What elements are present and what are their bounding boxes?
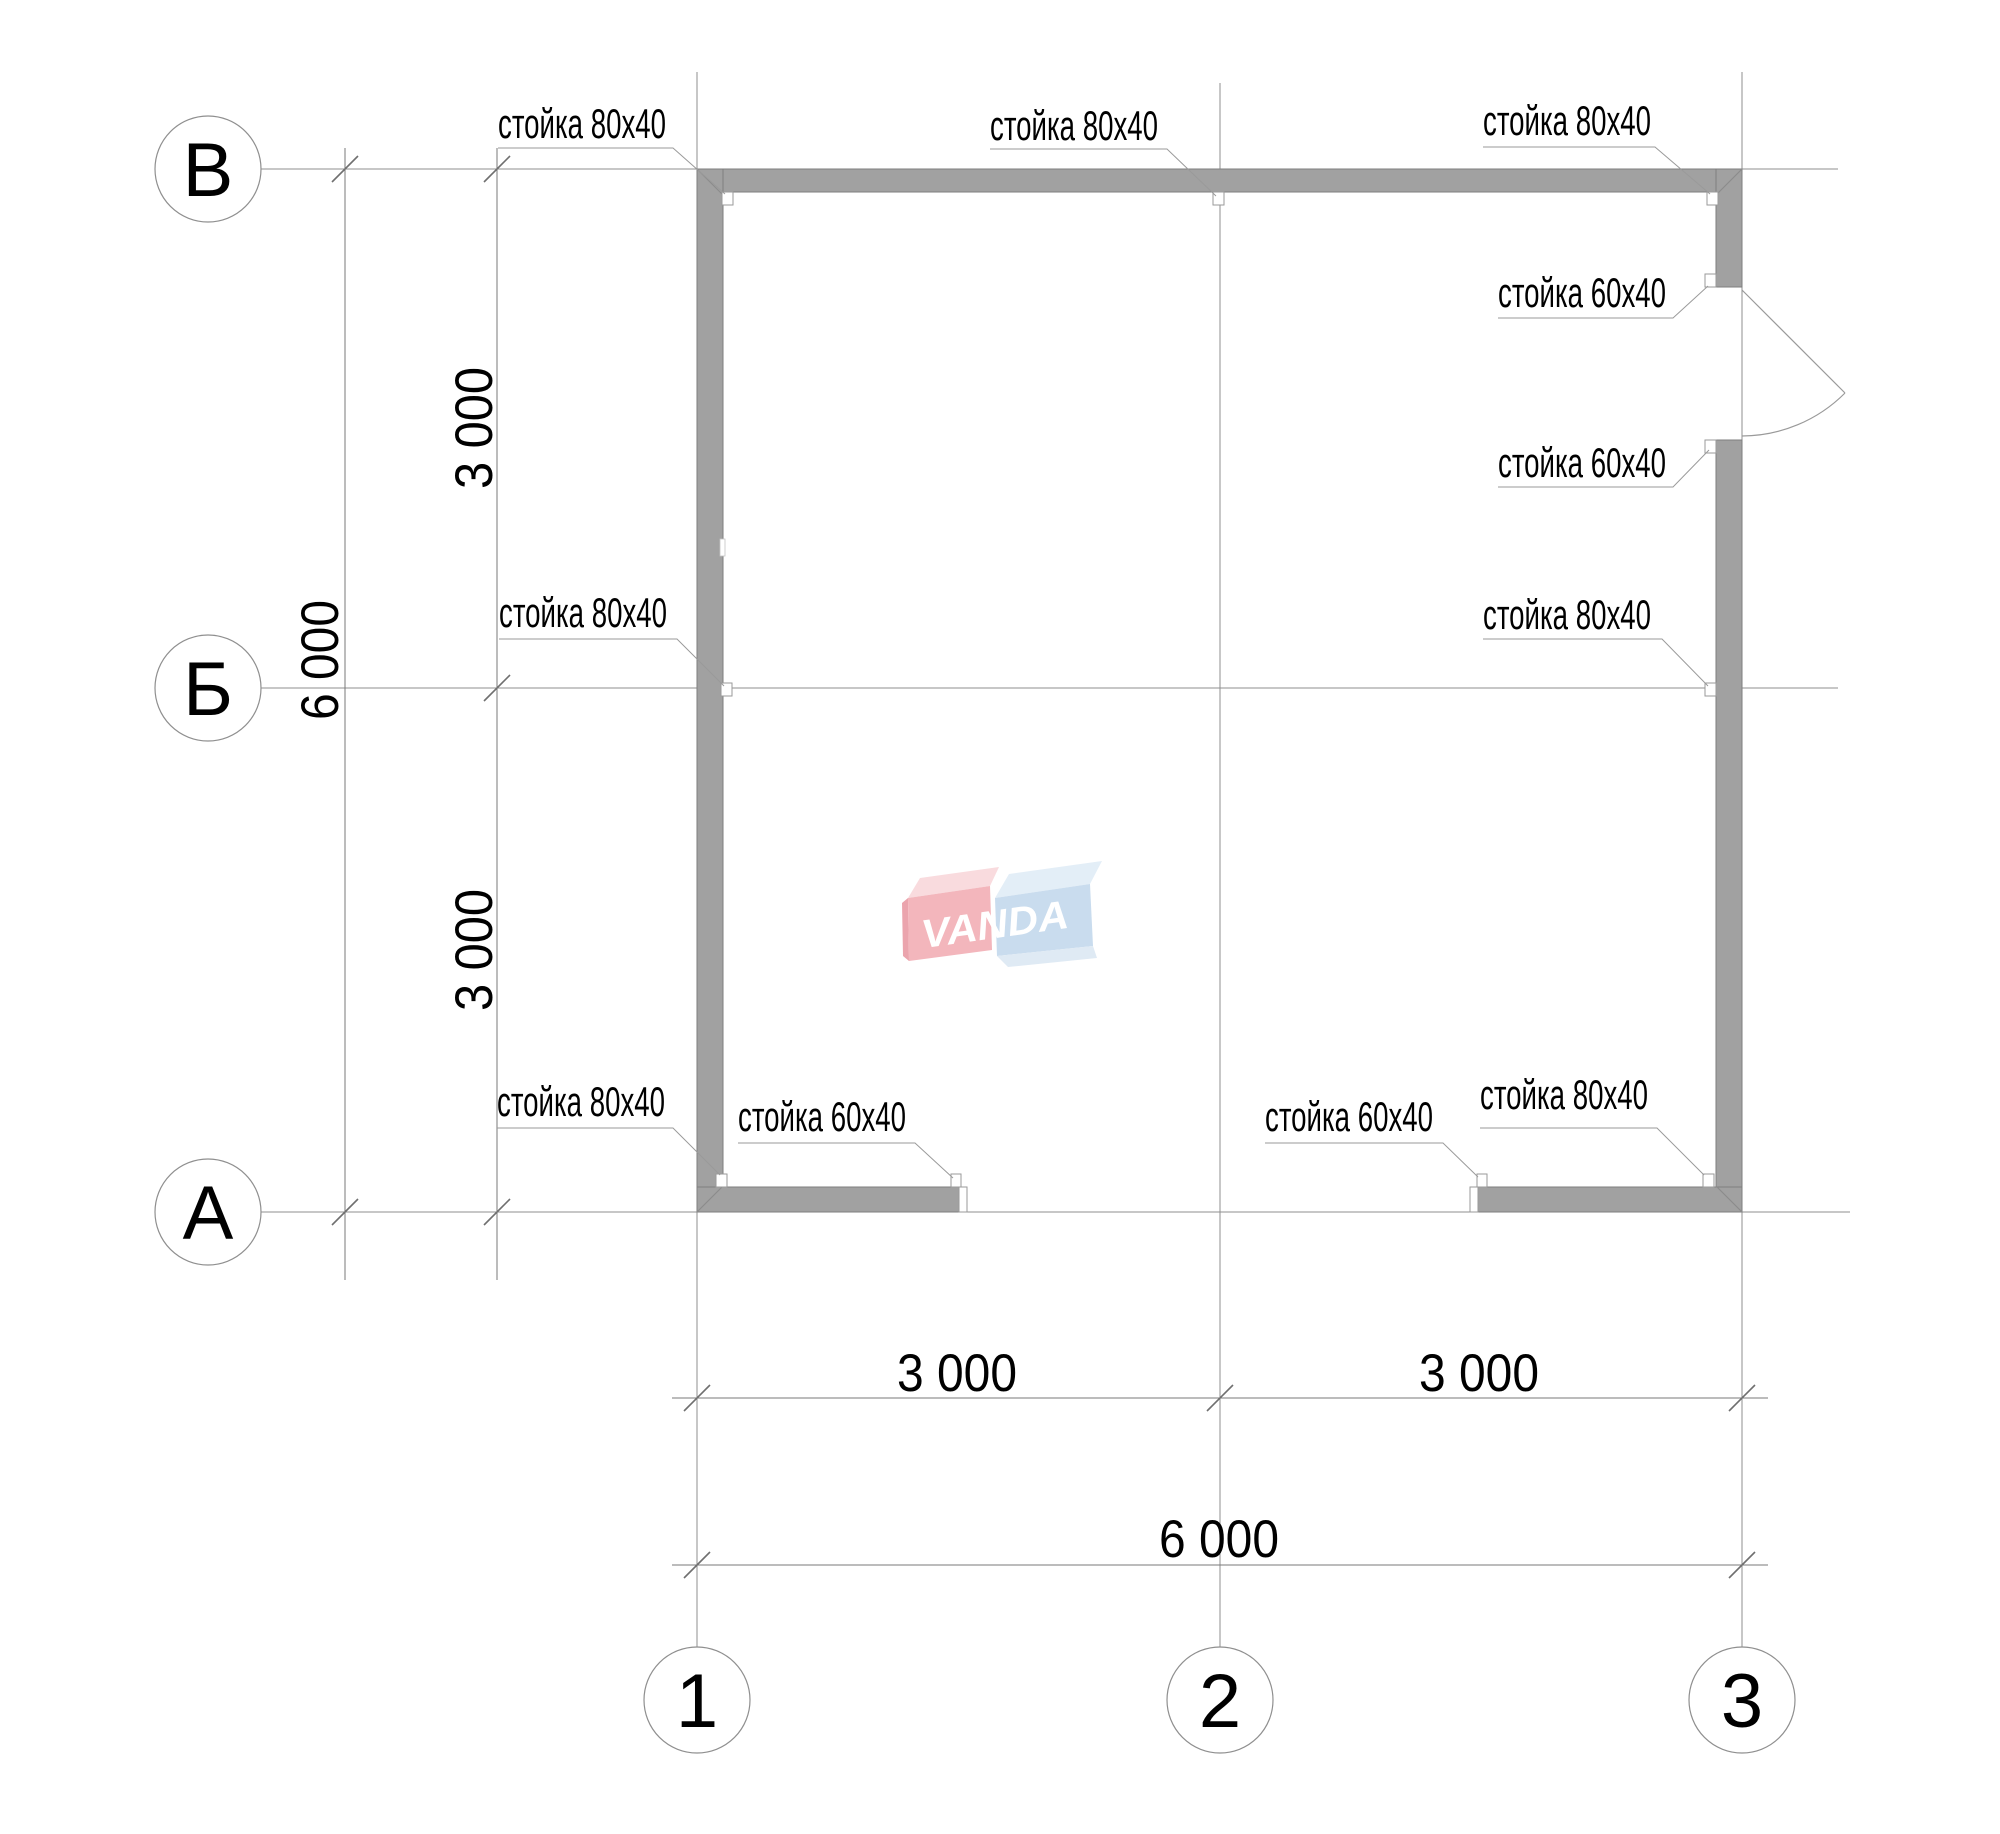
axis-bubble-row-a-label: А bbox=[183, 1171, 234, 1256]
door-swing bbox=[1742, 290, 1845, 436]
wall-right-lower bbox=[1716, 440, 1742, 1212]
post-bottom-right-corner bbox=[1703, 1174, 1714, 1187]
floor-plan-sheet: стойка 80х40 стойка 80х40 стойка 80х40 с… bbox=[0, 0, 2000, 1834]
wall-left bbox=[697, 169, 723, 1212]
axis-bubble-col-1-label: 1 bbox=[676, 1659, 718, 1744]
stud-callouts: стойка 80х40 стойка 80х40 стойка 80х40 с… bbox=[497, 97, 1710, 1178]
floor-plan-drawing: стойка 80х40 стойка 80х40 стойка 80х40 с… bbox=[0, 0, 2000, 1834]
stud-leader-bottom-opening-right bbox=[1265, 1143, 1478, 1177]
stud-label-right-middle: стойка 80х40 bbox=[1483, 591, 1651, 638]
axis-bubbles-columns: 1 2 3 bbox=[644, 1647, 1795, 1753]
stud-leader-bottom-left bbox=[497, 1128, 720, 1175]
stud-label-left-middle: стойка 80х40 bbox=[499, 589, 667, 636]
door-swing-arc bbox=[1742, 393, 1845, 436]
dim-left-top-segment: 3 000 bbox=[445, 367, 504, 489]
stud-leader-top-left bbox=[498, 148, 725, 194]
stud-leader-right-middle bbox=[1483, 639, 1708, 686]
post-door-bottom-jamb bbox=[1705, 440, 1716, 453]
stud-posts bbox=[716, 192, 1718, 1187]
post-left-wall-notch bbox=[720, 539, 725, 556]
logo-red-side-face bbox=[902, 898, 909, 961]
post-bottom-opening-left bbox=[951, 1174, 961, 1187]
dimension-lines bbox=[345, 148, 1768, 1565]
dim-bottom-total: 6 000 bbox=[1159, 1510, 1279, 1569]
door-leaf-line bbox=[1742, 290, 1845, 393]
axis-bubbles-rows: В Б А bbox=[155, 116, 261, 1265]
stud-label-top-middle: стойка 80х40 bbox=[990, 102, 1158, 149]
wall-end-cap-left-opening bbox=[959, 1187, 967, 1212]
dimension-ticks bbox=[332, 156, 1755, 1578]
post-bottom-left-corner bbox=[716, 1174, 727, 1187]
stud-label-bottom-left: стойка 80х40 bbox=[497, 1078, 665, 1125]
axis-bubble-col-2-label: 2 bbox=[1199, 1659, 1241, 1744]
dim-bottom-right-segment: 3 000 bbox=[1419, 1344, 1539, 1403]
wall-top bbox=[697, 169, 1742, 192]
post-top-right-corner bbox=[1707, 192, 1718, 205]
post-door-top-jamb bbox=[1705, 274, 1716, 287]
stud-label-top-left: стойка 80х40 bbox=[498, 100, 666, 147]
wall-bottom-right bbox=[1478, 1187, 1742, 1212]
axis-bubble-row-v-label: В bbox=[183, 128, 234, 213]
dim-left-total: 6 000 bbox=[291, 600, 350, 720]
stud-leader-bottom-opening-left bbox=[738, 1143, 953, 1178]
post-top-left-corner bbox=[722, 192, 733, 205]
stud-label-top-right: стойка 80х40 bbox=[1483, 97, 1651, 144]
dimension-texts: 3 000 3 000 6 000 3 000 3 000 6 000 bbox=[291, 367, 1539, 1569]
stud-label-door-bottom: стойка 60х40 bbox=[1498, 439, 1666, 486]
dim-left-bottom-segment: 3 000 bbox=[445, 889, 504, 1011]
axis-bubble-col-3-label: 3 bbox=[1721, 1659, 1763, 1744]
stud-label-bottom-right: стойка 80х40 bbox=[1480, 1071, 1648, 1118]
post-top-middle bbox=[1213, 192, 1224, 205]
wall-bottom-left bbox=[697, 1187, 959, 1212]
axis-bubble-row-b-label: Б bbox=[183, 647, 233, 732]
stud-leader-left-middle bbox=[499, 639, 724, 686]
stud-label-bottom-opening-right: стойка 60х40 bbox=[1265, 1093, 1433, 1140]
vanda-logo: VANDA bbox=[902, 861, 1102, 967]
post-bottom-opening-right bbox=[1477, 1174, 1487, 1187]
wall-end-cap-right-opening bbox=[1470, 1187, 1478, 1212]
dim-bottom-left-segment: 3 000 bbox=[897, 1344, 1017, 1403]
wall-right-upper bbox=[1716, 169, 1742, 287]
stud-label-bottom-opening-left: стойка 60х40 bbox=[738, 1093, 906, 1140]
stud-leader-bottom-right bbox=[1480, 1128, 1704, 1175]
stud-label-door-top: стойка 60х40 bbox=[1498, 269, 1666, 316]
